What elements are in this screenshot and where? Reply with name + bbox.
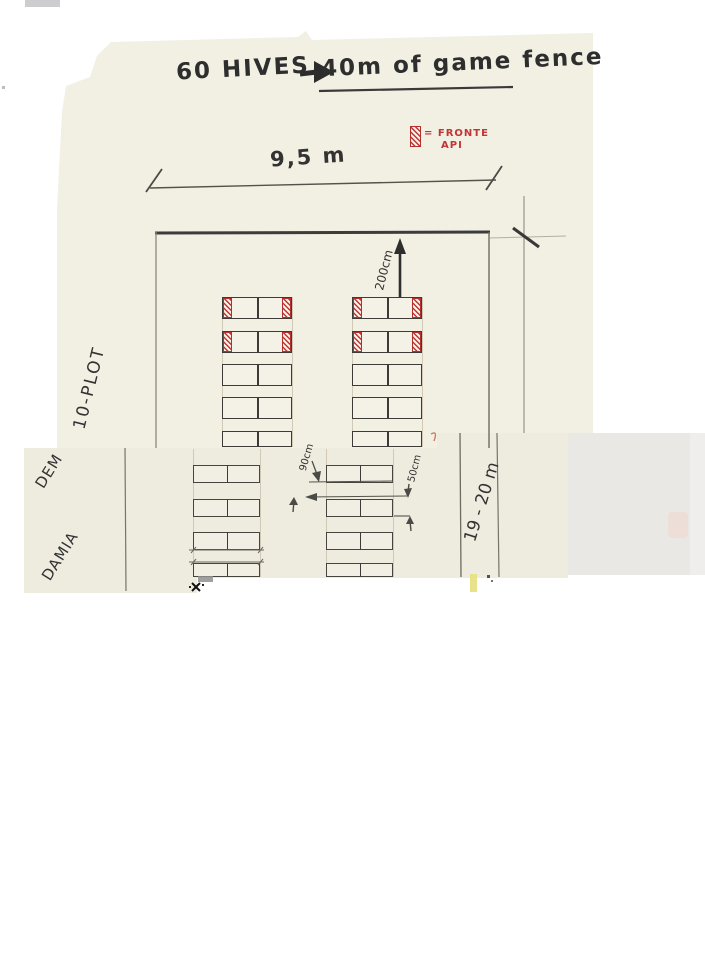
hive-row <box>352 331 422 353</box>
hive-row <box>222 364 292 386</box>
hive-row <box>352 397 422 419</box>
hive-row <box>352 431 422 447</box>
hive-divider <box>227 532 229 550</box>
hive-row <box>326 499 393 517</box>
scanned-sketch-page: 60 HIVES 40m of game fence = FRONTE API … <box>0 0 705 980</box>
hive-divider <box>257 331 259 353</box>
hive-divider <box>360 532 362 550</box>
hive-row <box>222 397 292 419</box>
hive-row <box>326 532 393 550</box>
hive-front-red <box>412 298 421 318</box>
hive-front-red <box>412 332 421 352</box>
hive-row <box>326 563 393 577</box>
column-guide <box>393 449 394 577</box>
hive-row <box>193 532 260 550</box>
hive-row <box>193 563 260 577</box>
hive-front-red <box>223 332 232 352</box>
hive-row <box>222 331 292 353</box>
column-guide <box>260 449 261 577</box>
hive-divider <box>257 397 259 419</box>
hive-front-red <box>282 298 291 318</box>
hive-divider <box>227 465 229 483</box>
hive-divider <box>387 331 389 353</box>
column-guide <box>292 297 293 447</box>
hive-row <box>193 499 260 517</box>
legend-hive-front-icon <box>410 126 421 147</box>
hive-divider <box>387 364 389 386</box>
hive-divider <box>257 431 259 447</box>
legend-text-line2: API <box>441 140 463 151</box>
hive-layer <box>0 0 705 980</box>
hive-row <box>222 297 292 319</box>
hive-divider <box>360 499 362 517</box>
hive-row <box>193 465 260 483</box>
hive-divider <box>227 563 229 577</box>
column-guide <box>422 297 423 447</box>
hive-row <box>326 465 393 483</box>
hive-front-red <box>223 298 232 318</box>
hive-divider <box>360 465 362 483</box>
legend-text-line1: = FRONTE <box>424 128 489 139</box>
hive-divider <box>257 297 259 319</box>
hive-row <box>352 364 422 386</box>
hive-front-red <box>282 332 291 352</box>
hive-row <box>222 431 292 447</box>
hive-divider <box>387 431 389 447</box>
hive-divider <box>387 397 389 419</box>
hive-front-red <box>353 332 362 352</box>
hive-divider <box>360 563 362 577</box>
hive-divider <box>387 297 389 319</box>
hive-divider <box>257 364 259 386</box>
hive-row <box>352 297 422 319</box>
hive-front-red <box>353 298 362 318</box>
hive-divider <box>227 499 229 517</box>
